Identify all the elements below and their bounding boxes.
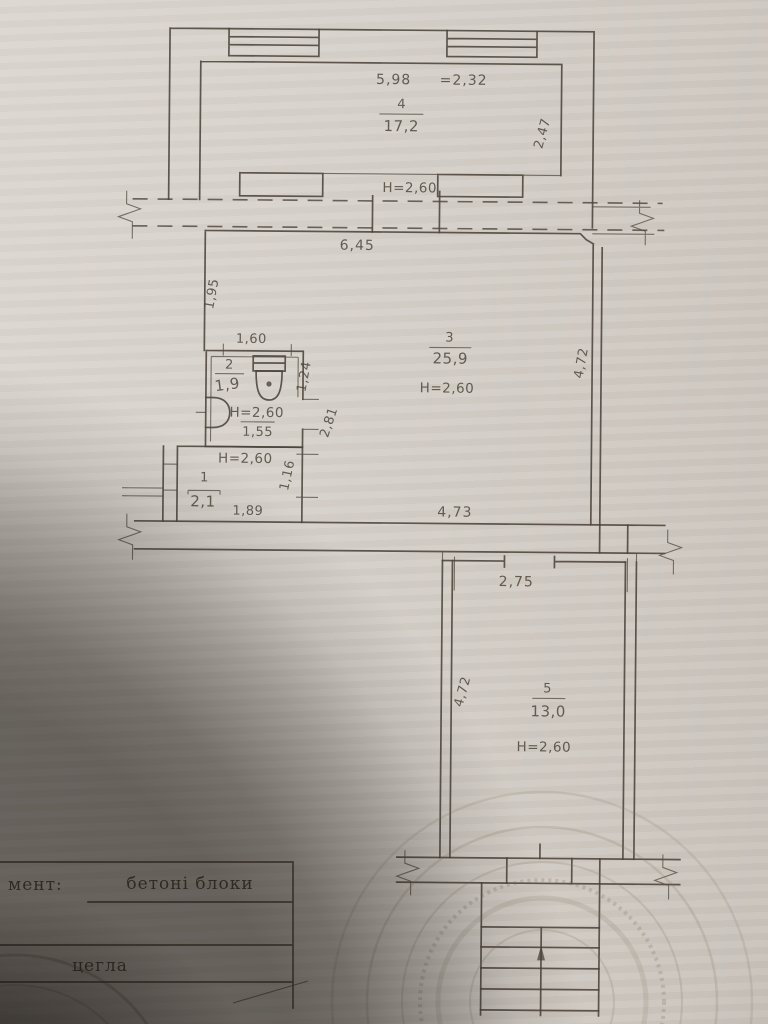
room2-height: Н=2,60: [229, 405, 284, 421]
window-left-icon: [229, 29, 319, 57]
room4-wall-height: Н=2,60: [382, 180, 437, 196]
room2-dim-right: 1,24: [294, 360, 314, 393]
room1-dim-bottom: 1,89: [232, 504, 263, 519]
room4-area: 17,2: [383, 117, 419, 135]
room4-dim-top: 5,98: [376, 72, 411, 88]
room3-dim-top: 6,45: [340, 238, 375, 254]
legend-table: мент: бетоні блоки цегла: [0, 862, 308, 1008]
corridor-walls: [134, 521, 665, 593]
floor-plan-photo: 5,98 =2,32 4 17,2 2,47 Н=2,60 6,45 1,95 …: [0, 0, 768, 1024]
room2-dim-inner: 1,55: [242, 425, 273, 440]
room3-dim-bottom: 4,73: [437, 504, 472, 520]
room4-number: 4: [397, 97, 405, 112]
room4-dim-top-right: =2,32: [440, 72, 488, 88]
room2-dim-top: 1,60: [236, 332, 267, 347]
room1-area: 2,1: [190, 492, 216, 510]
room4-dim-right: 2,47: [531, 117, 554, 151]
room3-dim-diag: 2,81: [317, 405, 341, 439]
room3-area: 25,9: [432, 349, 468, 367]
room2-area: 1,9: [214, 374, 241, 395]
room3-height: Н=2,60: [420, 380, 475, 396]
window-right-icon: [447, 31, 537, 58]
floor-plan-drawing: 5,98 =2,32 4 17,2 2,47 Н=2,60 6,45 1,95 …: [0, 0, 768, 1024]
room1-dim-right: 1,16: [277, 459, 298, 492]
room3-number: 3: [445, 331, 453, 346]
toilet-icon: [253, 356, 285, 400]
legend-row2-value: цегла: [72, 956, 128, 976]
room2-number: 2: [225, 358, 233, 373]
legend-row1-label: мент:: [8, 875, 63, 895]
sink-icon: [196, 397, 230, 427]
room1-height: Н=2,60: [218, 451, 273, 467]
stairs-icon: [481, 883, 600, 1016]
room1-number: 1: [200, 470, 208, 485]
room5-dim-top: 2,75: [499, 574, 534, 590]
wall-break-right-mid-icon: [659, 529, 681, 574]
round-stamp: [0, 792, 752, 1024]
legend-row1-value: бетоні блоки: [126, 874, 253, 894]
room3-walls: [203, 230, 603, 524]
wall-break-left-top-icon: [118, 191, 140, 239]
room5-dim-left: 4,72: [452, 675, 475, 709]
room5-height: Н=2,60: [517, 739, 572, 755]
room3-dim-right: 4,72: [572, 347, 592, 380]
wall-break-right-top-icon: [592, 200, 654, 246]
room5-number: 5: [543, 681, 551, 696]
room5-area: 13,0: [530, 702, 566, 720]
